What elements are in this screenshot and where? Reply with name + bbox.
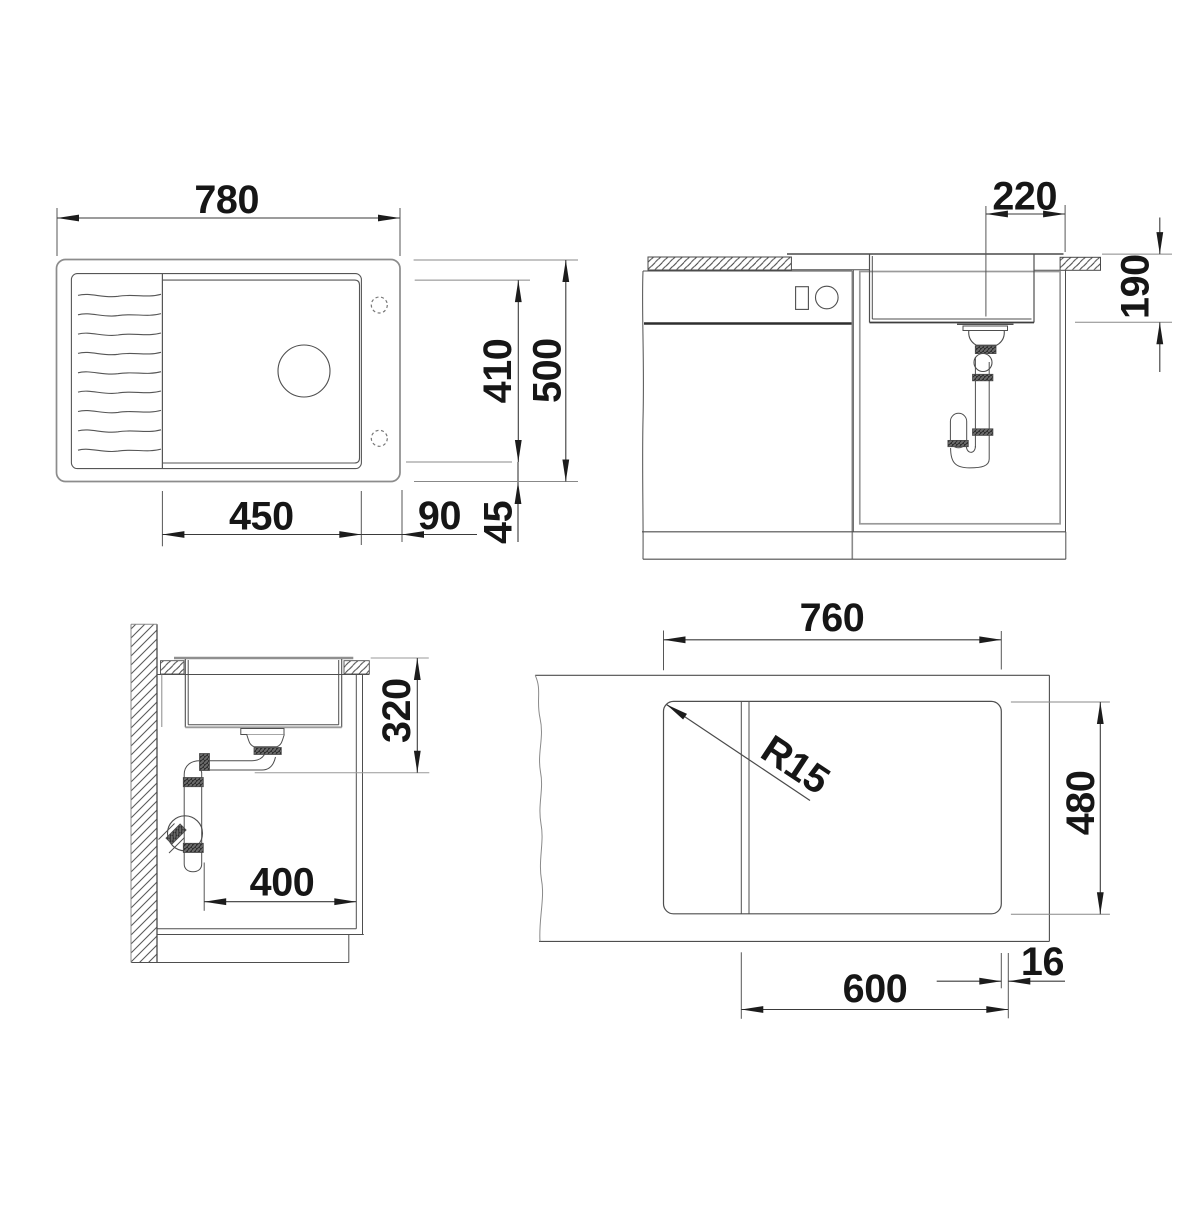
svg-text:480: 480: [1059, 771, 1103, 836]
svg-text:400: 400: [250, 861, 315, 905]
svg-text:410: 410: [476, 339, 520, 404]
svg-text:600: 600: [843, 967, 908, 1011]
svg-text:760: 760: [800, 596, 865, 640]
svg-text:320: 320: [375, 678, 419, 743]
svg-text:780: 780: [194, 178, 259, 222]
svg-text:190: 190: [1113, 254, 1157, 319]
svg-text:16: 16: [1021, 940, 1064, 984]
svg-text:45: 45: [477, 501, 521, 544]
svg-text:500: 500: [525, 338, 569, 403]
svg-text:220: 220: [992, 174, 1057, 218]
svg-text:450: 450: [229, 495, 294, 539]
svg-text:90: 90: [418, 494, 461, 538]
